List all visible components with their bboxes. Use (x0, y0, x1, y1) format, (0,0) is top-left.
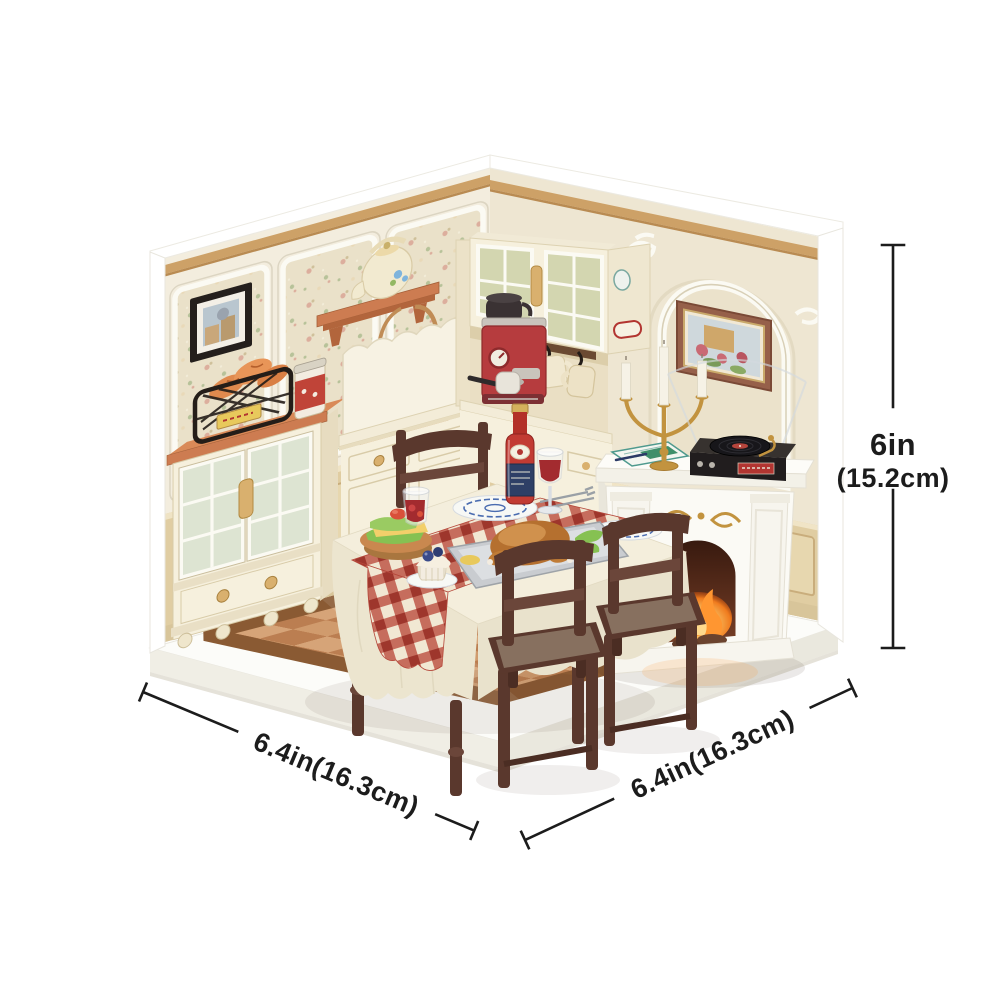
hutch-handle (239, 478, 253, 520)
dimension-height-cm: (15.2cm) (837, 463, 950, 493)
candle (698, 361, 707, 397)
candle (622, 363, 631, 399)
red-drink-glass (403, 487, 429, 525)
dimension-height: 6in (15.2cm) (837, 245, 950, 648)
product-dimension-image: 6in (15.2cm) 6.4in(16.3cm) 6.4in(16.3cm) (0, 0, 1000, 1000)
candle (660, 347, 669, 405)
sticker-badge (613, 320, 642, 339)
cabinet-handle (531, 266, 542, 306)
espresso-cup (496, 372, 520, 394)
diorama-scene: 6in (15.2cm) 6.4in(16.3cm) 6.4in(16.3cm) (0, 0, 1000, 1000)
dimension-height-inches: 6in (870, 427, 916, 462)
red-storage-jar (294, 357, 326, 420)
